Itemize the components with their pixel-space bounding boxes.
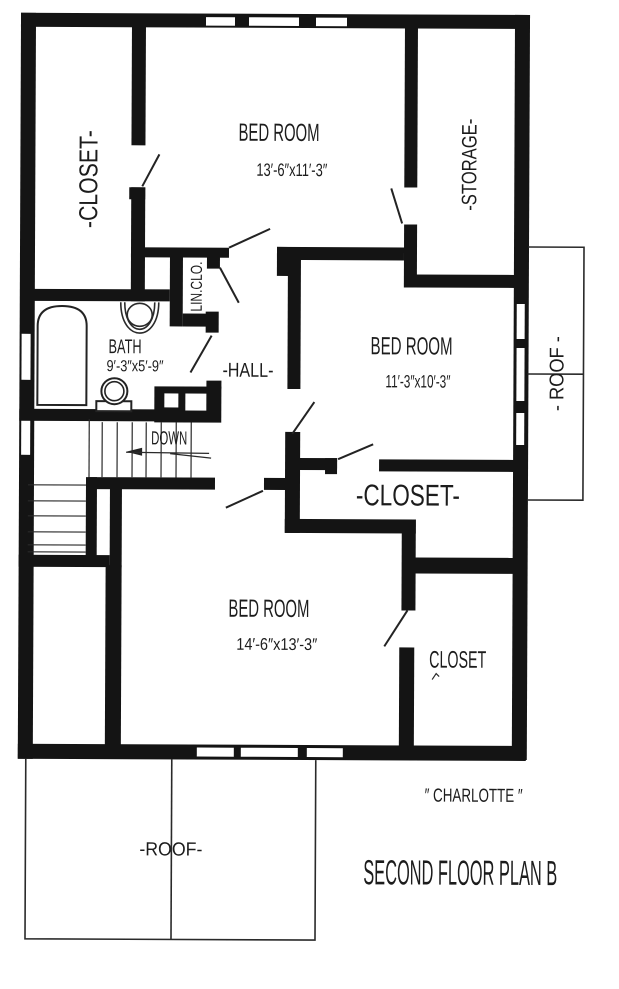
svg-text:DOWN: DOWN [151,428,187,449]
svg-text:-ROOF-: -ROOF- [139,839,202,860]
svg-text:-CLOSET-: -CLOSET- [356,479,460,512]
svg-text:11′-3″x10′-3″: 11′-3″x10′-3″ [385,371,450,391]
svg-text:″ CHARLOTTE ″: ″ CHARLOTTE ″ [425,786,523,807]
svg-text:CLOSET: CLOSET [429,647,486,674]
svg-text:BED ROOM: BED ROOM [371,332,453,360]
svg-text:BATH: BATH [109,336,142,358]
svg-text:SECOND FLOOR PLAN B: SECOND FLOOR PLAN B [363,853,557,893]
svg-text:- ROOF -: - ROOF - [546,336,568,411]
svg-text:BED ROOM: BED ROOM [238,119,319,147]
svg-text:-HALL-: -HALL- [222,360,273,382]
svg-text:9′-3″x5′-9″: 9′-3″x5′-9″ [106,358,163,375]
svg-text:LIN.CLO.: LIN.CLO. [189,262,206,312]
svg-text:BED ROOM: BED ROOM [228,595,309,623]
svg-text:13′-6″x11′-3″: 13′-6″x11′-3″ [256,160,328,180]
svg-text:-CLOSET-: -CLOSET- [73,130,103,228]
svg-text:14′-6″x13′-3″: 14′-6″x13′-3″ [236,635,317,654]
svg-text:-STORAGE-: -STORAGE- [458,119,481,211]
